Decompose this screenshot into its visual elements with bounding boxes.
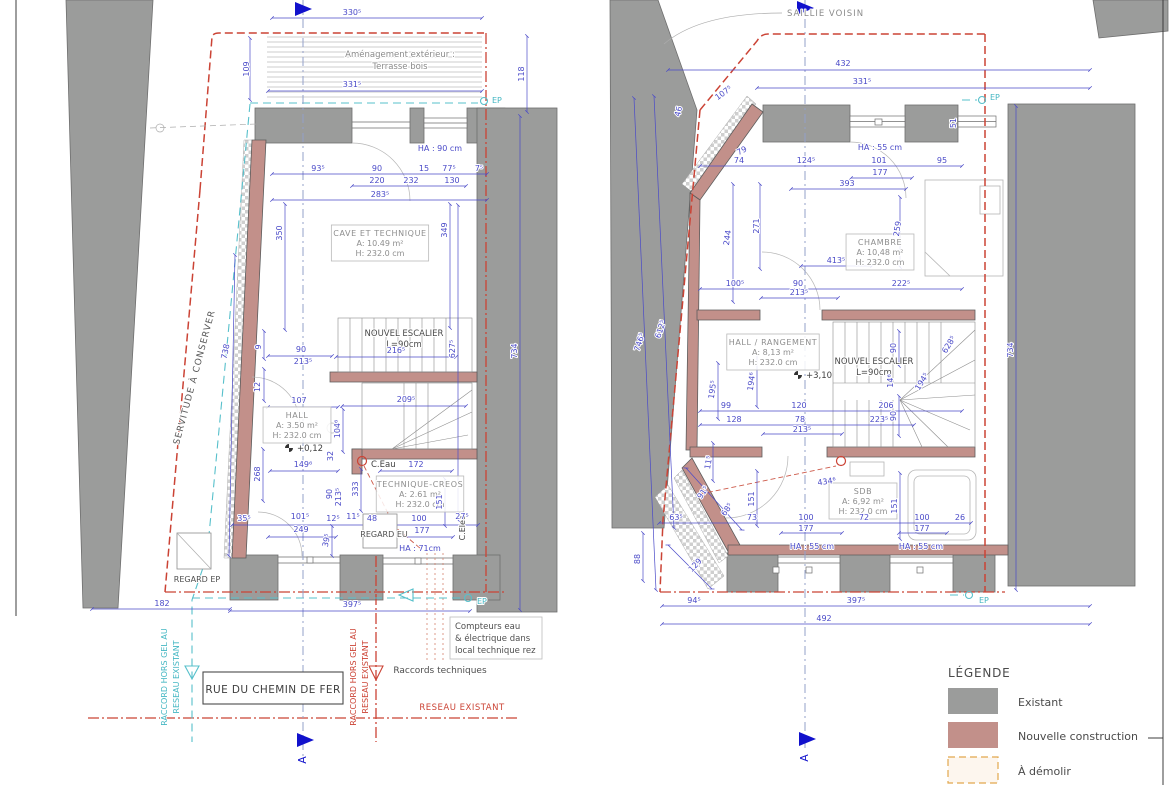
dim-label: 177 [414,526,429,535]
section-letter: A [296,756,309,764]
dim-label: 74 [734,156,744,165]
dim-label: 492 [816,614,831,623]
room-label-line: A: 6,92 m² [842,497,884,506]
dim-label: 95 [937,156,947,165]
section-arrow [297,733,314,747]
saillie-leader [664,13,782,44]
room-label-chambre: CHAMBREA: 10,48 m²H: 232.0 cm [846,234,914,270]
room-label-line: SDB [854,487,873,496]
ha-90-label: HA : 90 cm [418,144,462,153]
dim-label: 99 [721,401,731,410]
dim-label: 78 [795,415,805,424]
legend-swatch-existing [948,688,998,714]
section-letter: A [798,754,811,762]
room-label-hall-rangement: HALL / RANGEMENTA: 8,13 m²H: 232.0 cm [727,334,819,370]
dim-label: 9 [254,344,263,349]
right-plan-west-wall-upper [690,104,763,200]
dim-label: 283⁵ [371,190,389,199]
dim-label: 172 [408,460,423,469]
dim-label: 107 [291,396,306,405]
dim-label: 72 [859,513,869,522]
dim-label: 151 [890,498,899,513]
dim-label: 213⁵ [334,488,343,506]
regard-eu-label: REGARD EU [360,530,408,539]
right-plan-south-wall [728,545,1008,555]
room-label-technique-creos: TECHNIQUE-CREOSA: 2.61 m²H: 232.0 cm [376,476,464,512]
floor-plan-sheet: A A [0,0,1170,785]
legend: LÉGENDE Existant Nouvelle construction À… [948,665,1138,783]
dim-label: 413⁵ [827,256,845,265]
cyan-flow-triangle [399,589,413,601]
dim-label: 628⁵ [940,334,957,354]
room-label-line: HALL [286,411,309,420]
dim-label: 213⁵ [793,425,811,434]
dim-label: 232 [403,176,418,185]
dim-label: 222⁵ [892,279,910,288]
dim-label: 94⁵ [687,596,700,605]
level-left-label: +0,12 [297,444,323,454]
dim-label: 330⁵ [343,8,361,17]
ha-71-label: HA : 71cm [399,544,441,553]
room-label-line: H: 232.0 cm [273,431,322,440]
legend-label-existing: Existant [1018,696,1063,709]
dim-label: 734 [510,343,519,358]
dim-label: 90 [372,164,382,173]
dim-label: 100 [411,514,426,523]
ep-label: EP [990,93,1000,102]
dim-label: 194⁵ [913,371,930,391]
room-label-line: H: 232.0 cm [749,358,798,367]
servitude-label: SERVITUDE À CONSERVER [170,309,218,446]
dim-label: 90 [793,279,803,288]
saillie-voisin-label: SAILLIE VOISIN [787,9,864,19]
c-eau-label: C.Eau [371,460,396,470]
dim-label: 7⁵ [475,164,483,173]
legend-label-new: Nouvelle construction [1018,730,1138,743]
dim-label: 100⁵ [726,279,744,288]
dim-label: 68⁵ [719,502,734,518]
dim-label: 124⁵ [797,156,815,165]
stair-label-line: NOUVEL ESCALIER [365,329,444,339]
dim-label: 109 [242,61,251,76]
dim-label: 738 [220,343,232,360]
compteurs-line: & électrique dans [455,633,531,644]
bed [925,180,1003,276]
dim-label: 101 [871,156,886,165]
raccord-cyan-label: RESEAU EXISTANT [172,640,181,713]
dim-label: 331⁵ [343,80,361,89]
plan-drawing: A A [0,0,1170,785]
dim-label: 271 [752,218,761,233]
ep-label: EP [979,596,989,605]
legend-title: LÉGENDE [948,665,1011,680]
room-label-line: A: 10,48 m² [856,248,903,257]
legend-swatch-demolish [948,757,998,783]
dim-label: 151 [747,491,756,506]
ha-55-label: HA : 55 cm [790,542,834,551]
reseau-existant-label: RESEAU EXISTANT [419,703,505,713]
dim-label: 213⁵ [294,357,312,366]
existing-building-center [610,0,697,528]
dim-label: 350 [275,225,284,240]
dim-label: 107⁵ [713,84,733,102]
washbasin [850,462,884,476]
dim-label: 393 [839,179,854,188]
dim-label: 333 [351,481,360,496]
dim-label: 73 [747,513,757,522]
dim-label: 101⁵ [291,512,309,521]
existing-building-right [1008,104,1135,586]
right-plan-west-wall [686,193,700,450]
dim-label: 90 [889,343,898,353]
stair-label-line: NOUVEL ESCALIER [835,357,914,367]
dim-label: 627⁵ [448,340,457,358]
section-arrow [799,732,816,746]
dim-label: 268 [253,466,262,481]
room-label-line: A: 3.50 m² [276,421,318,430]
compteurs-line: Compteurs eau [455,622,520,632]
level-marker-icon [285,444,293,452]
dim-label: 216⁵ [387,346,405,355]
left-plan-interior-wall-1 [330,372,477,382]
level-right-label: +3,10 [806,371,832,381]
dim-label: 349 [440,222,449,237]
dim-label: 206 [878,401,893,410]
dim-label: 149⁶ [294,460,312,469]
dim-label: 209⁵ [397,395,415,404]
dim-label: 118 [517,66,526,81]
room-label-line: A: 10.49 m² [356,239,403,248]
dim-label: 15 [419,164,429,173]
amenagement-label: Aménagement extérieur : [345,49,455,60]
legend-swatch-new [948,722,998,748]
legend-label-demolish: À démolir [1018,765,1071,778]
ha-55-label: HA : 55 cm [858,143,902,152]
room-label-cave: CAVE ET TECHNIQUEA: 10.49 m²H: 232.0 cm [331,225,428,261]
dim-label: 220 [369,176,384,185]
dim-label: 734 [1006,342,1015,357]
dim-label: 331⁵ [853,77,871,86]
dim-label: 100 [798,513,813,522]
dim-label: 32 [326,451,335,461]
ep-label: EP [492,96,502,105]
room-label-line: HALL / RANGEMENT [729,338,818,347]
dim-label: 14⁶ [886,374,895,387]
existing-building-left [66,0,153,608]
dim-label: 104⁶ [333,420,342,438]
room-label-line: TECHNIQUE-CREOS [376,480,464,489]
regard-ep-label: REGARD EP [174,575,221,584]
raccord-red-label: RESEAU EXISTANT [361,640,370,713]
dim-label: 11⁵ [703,455,714,470]
existing-building-top-right [1093,0,1168,38]
dim-label: 90 [889,411,898,421]
dim-label: 93⁵ [311,164,324,173]
ep-label: EP [477,597,487,606]
dim-label: 249 [293,525,308,534]
room-label-line: CHAMBRE [858,238,902,247]
dim-label: 100 [914,513,929,522]
dim-label: 177 [872,168,887,177]
dim-label: 90 [325,489,334,499]
dim-label: 397⁵ [343,600,361,609]
dim-label: 397⁵ [847,596,865,605]
compteurs-line: local technique rez [455,646,536,656]
dim-label: 128 [726,415,741,424]
dim-label: 244 [722,229,733,245]
dim-label: 177 [798,524,813,533]
raccords-techniques-label: Raccords techniques [393,666,487,676]
raccord-cyan-label: RACCORD HORS GEL AU [160,628,169,726]
dim-label: 194⁶ [746,372,757,392]
room-label-line: A: 8,13 m² [752,348,794,357]
dim-label: 90 [296,345,306,354]
dim-label: 12⁵ [326,514,339,523]
room-label-hall-left: HALLA: 3.50 m²H: 232.0 cm [263,407,331,443]
dim-label: 39⁵ [321,533,333,548]
dim-label: 26 [955,513,965,522]
dim-label: 11⁵ [346,512,359,521]
raccord-red-label: RACCORD HORS GEL AU [349,628,358,726]
dim-label: 88 [633,554,642,564]
dim-label: 51 [949,118,958,128]
room-label-line: CAVE ET TECHNIQUE [333,229,426,238]
street-name-label: RUE DU CHEMIN DE FER [205,684,340,696]
room-label-line: H: 232.0 cm [856,258,905,267]
dim-label: 213⁵ [790,288,808,297]
dim-label: 151 [435,494,444,509]
terrasse-label: Terrasse bois [371,62,428,72]
dim-label: 432 [835,59,850,68]
dim-label: 223⁵ [870,415,888,424]
dim-label: 195⁵ [707,380,718,400]
level-marker-icon [794,371,802,379]
dim-label: 182 [154,599,169,608]
dim-label: 12 [253,382,262,392]
dim-label: 35⁵ [237,514,250,523]
dim-label: 27⁵ [455,512,468,521]
dim-label: 77⁵ [442,164,455,173]
dim-label: 63⁵ [669,513,682,522]
dim-label: 130 [444,176,459,185]
dim-label: 177 [914,524,929,533]
dim-label: 48 [367,514,377,523]
ha-55-label: HA : 55 cm [899,542,943,551]
room-label-line: H: 232.0 cm [356,249,405,258]
dim-label: 120 [791,401,806,410]
